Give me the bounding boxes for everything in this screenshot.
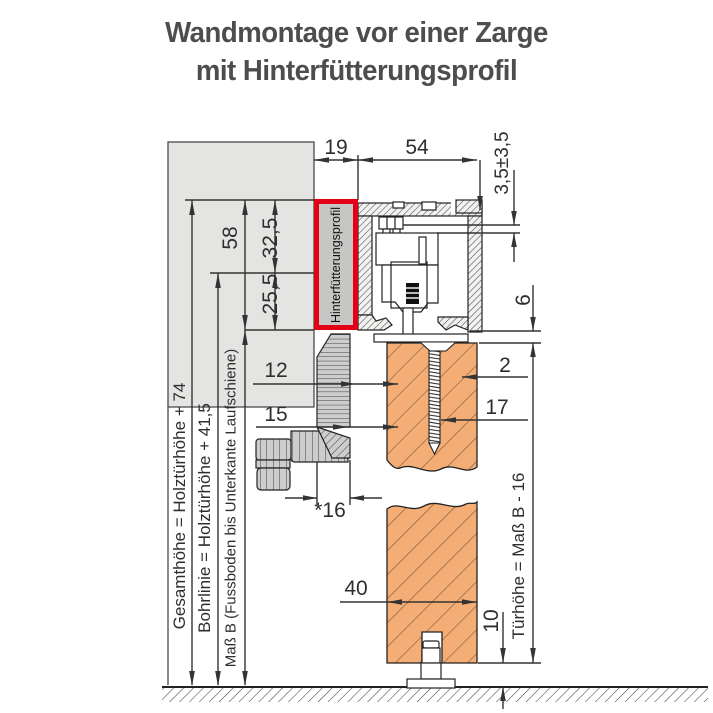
label-gesamthoehe: Gesamthöhe = Holztürhöhe + 74 [170,383,190,630]
dim-17: 17 [485,396,508,420]
hinterfuetterungsprofil-label: Hinterfütterungsprofil [329,206,343,322]
label-tuerhoehe: Türhöhe = Maß B - 16 [509,473,529,640]
dim-10: 10 [480,609,504,632]
door-panel-lower [387,502,477,663]
dim-32-5: 32,5 [259,218,283,259]
dim-6: 6 [512,294,536,306]
diagram-page: Wandmontage vor einer Zarge mit Hinterfü… [0,0,713,713]
hinterfuetterungsprofil-highlight: Hinterfütterungsprofil [314,199,358,330]
dim-54: 54 [405,136,428,160]
dim-40: 40 [344,577,367,601]
dim-12: 12 [264,359,287,383]
dim-2: 2 [499,354,511,378]
dim-16: *16 [314,499,346,523]
dim-19: 19 [324,136,347,160]
diagram-canvas [0,0,713,713]
dim-25-5: 25,5 [259,274,283,315]
dim-58: 58 [219,226,243,249]
floor-section [162,687,708,702]
dim-3-5: 3,5±3,5 [492,131,514,194]
label-bohrlinie: Bohrlinie = Holztürhöhe + 41,5 [195,403,215,633]
label-mass-b: Maß B (Fussboden bis Unterkante Laufschi… [223,349,240,668]
dim-15: 15 [264,403,287,427]
